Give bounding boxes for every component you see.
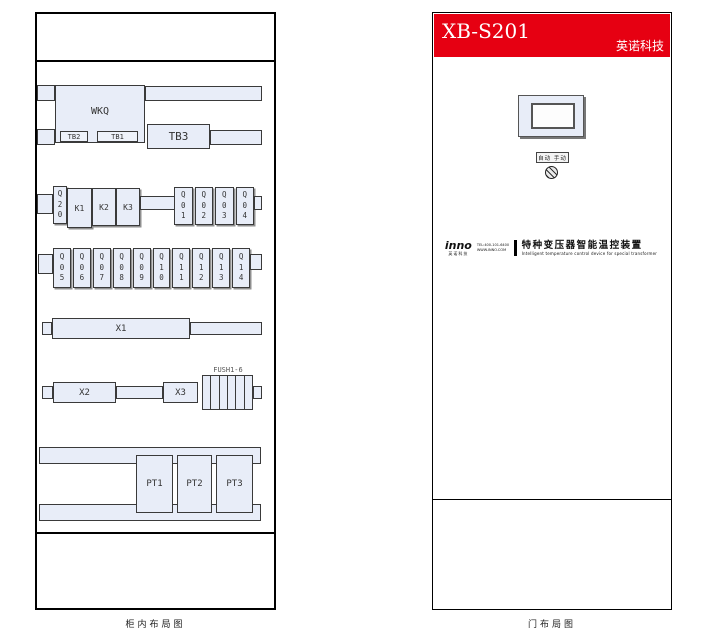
logo-tel: TEL:400-101-6400 (477, 244, 509, 248)
mode-selector-label: 自动 手动 (536, 152, 569, 163)
breaker-group-q05-q14: Q05 Q06 Q07 Q08 Q09 Q10 Q11 Q12 Q13 Q14 (53, 248, 250, 288)
door-panel: XB-S201 英诺科技 自动 手动 inno 英诺科技 TEL:400-101… (432, 12, 672, 610)
tb1-label: TB1 (111, 133, 124, 141)
breaker-group-q01-q04: Q01 Q02 Q03 Q04 (174, 187, 254, 225)
tb2-label: TB2 (68, 133, 81, 141)
breaker-q14: Q14 (232, 248, 250, 288)
breaker-q05: Q05 (53, 248, 71, 288)
breaker-q08: Q08 (113, 248, 131, 288)
model-number: XB-S201 (442, 19, 530, 43)
tb3-terminal: TB3 (147, 124, 210, 149)
x1-label: X1 (116, 324, 127, 334)
din-rail-stub (253, 386, 262, 399)
q09-label: Q09 (139, 252, 144, 285)
nameplate-divider (514, 240, 517, 256)
x3-label: X3 (175, 388, 186, 398)
q13-label: Q13 (219, 252, 224, 285)
cabinet-panel: WKQ TB2 TB1 TB3 Q20 K1 K2 K3 Q01 Q0 (35, 12, 276, 610)
k1-label: K1 (75, 204, 85, 213)
transformer-pt1: PT1 (136, 455, 173, 513)
k3-label: K3 (123, 203, 133, 212)
relay-k3: K3 (116, 188, 140, 226)
hmi-display-screen (531, 103, 575, 129)
logo-subtext: 英诺科技 (448, 252, 468, 256)
fush-label: FUSH1-6 (213, 366, 243, 374)
q08-label: Q08 (119, 252, 124, 285)
din-rail-stub (37, 129, 55, 145)
wkq-label: WKQ (91, 106, 109, 117)
transformer-pt2: PT2 (177, 455, 212, 513)
breaker-q13: Q13 (212, 248, 230, 288)
door-header: XB-S201 英诺科技 (434, 14, 670, 57)
terminal-strip-x3: X3 (163, 382, 198, 403)
q07-label: Q07 (100, 252, 105, 285)
din-rail-stub (38, 254, 53, 274)
q02-label: Q02 (202, 190, 207, 223)
breaker-q03: Q03 (215, 187, 234, 225)
q01-label: Q01 (181, 190, 186, 223)
door-bottom-divider (433, 499, 671, 500)
q03-label: Q03 (222, 190, 227, 223)
q10-label: Q10 (159, 252, 164, 285)
breaker-q09: Q09 (133, 248, 151, 288)
cabinet-caption: 柜内布局图 (35, 617, 276, 630)
relay-k1: K1 (67, 188, 92, 228)
terminal-strip-x2: X2 (53, 382, 116, 403)
din-rail-stub (42, 322, 52, 335)
brand-name: 英诺科技 (616, 37, 664, 54)
inno-logo: inno (445, 240, 472, 251)
pt3-label: PT3 (226, 479, 242, 489)
tb2-terminal: TB2 (60, 131, 88, 142)
din-rail-stub (250, 254, 262, 270)
breaker-q12: Q12 (192, 248, 210, 288)
breaker-q04: Q04 (236, 187, 255, 225)
fuse-segment (244, 375, 253, 410)
breaker-q10: Q10 (153, 248, 171, 288)
mode-selector-knob-icon (545, 166, 558, 179)
drawing-canvas: WKQ TB2 TB1 TB3 Q20 K1 K2 K3 Q01 Q0 (0, 0, 707, 635)
breaker-q11: Q11 (172, 248, 190, 288)
pt1-label: PT1 (146, 479, 162, 489)
q20-label: Q20 (58, 189, 63, 222)
terminal-strip-x1: X1 (52, 318, 190, 339)
din-rail (116, 386, 163, 399)
breaker-q20: Q20 (53, 186, 67, 224)
din-rail (210, 130, 262, 145)
door-caption-text: 门布局图 (528, 620, 576, 630)
cabinet-top-divider (37, 60, 274, 62)
din-rail-stub (37, 85, 55, 101)
product-name-en: Intelligent temperature control device f… (522, 252, 658, 256)
logo-contact-block: TEL:400-101-6400 WWW.INNO.COM (477, 244, 509, 253)
k2-label: K2 (99, 203, 109, 212)
q11-label: Q11 (179, 252, 184, 285)
x2-label: X2 (79, 388, 90, 398)
tb1-terminal: TB1 (97, 131, 138, 142)
tb3-label: TB3 (169, 130, 189, 143)
product-name-cn: 特种变压器智能温控装置 (522, 241, 658, 251)
breaker-q07: Q07 (93, 248, 111, 288)
din-rail-stub (37, 194, 53, 214)
pt2-label: PT2 (186, 479, 202, 489)
q14-label: Q14 (239, 252, 244, 285)
door-caption: 门布局图 (432, 617, 672, 630)
breaker-q01: Q01 (174, 187, 193, 225)
logo-web: WWW.INNO.COM (477, 249, 509, 253)
transformer-pt3: PT3 (216, 455, 253, 513)
din-rail (145, 86, 262, 101)
fuse-group-fush1-6 (203, 375, 253, 410)
breaker-q02: Q02 (195, 187, 214, 225)
cabinet-caption-text: 柜内布局图 (125, 620, 185, 630)
din-rail (190, 322, 262, 335)
cabinet-bottom-divider (37, 532, 274, 534)
logo-block: inno 英诺科技 (445, 240, 472, 256)
din-rail-stub (42, 386, 53, 399)
q05-label: Q05 (60, 252, 65, 285)
din-rail (140, 196, 176, 210)
product-title-block: 特种变压器智能温控装置 Intelligent temperature cont… (522, 241, 658, 256)
din-rail-stub (254, 196, 262, 210)
q12-label: Q12 (199, 252, 204, 285)
fuse-group-label: FUSH1-6 (203, 366, 253, 375)
relay-k2: K2 (92, 188, 116, 226)
nameplate: inno 英诺科技 TEL:400-101-6400 WWW.INNO.COM … (433, 240, 669, 256)
q06-label: Q06 (80, 252, 85, 285)
q04-label: Q04 (243, 190, 248, 223)
breaker-q06: Q06 (73, 248, 91, 288)
mode-label-text: 自动 手动 (538, 154, 567, 162)
